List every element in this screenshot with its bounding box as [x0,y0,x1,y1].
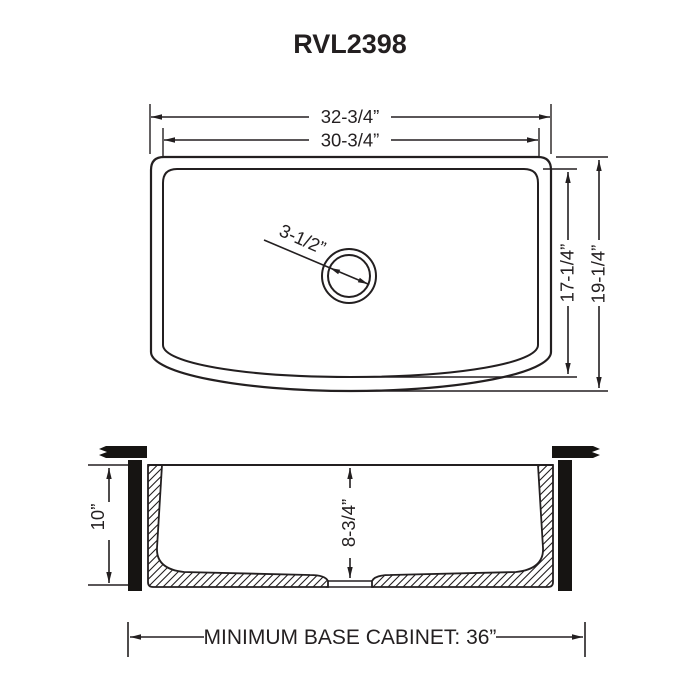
arrowhead-down-icon [347,567,352,578]
dim-bowl-inner-depth: 8-3/4” [338,468,359,578]
arrowhead-down-icon [565,363,570,374]
arrowhead-up-icon [596,160,601,171]
arrowhead-down-icon [106,572,111,583]
apron-height-label: 10” [87,504,108,531]
dim-overall-width: 32-3/4” [151,106,550,127]
bowl-inner-depth-label: 8-3/4” [338,499,359,547]
dim-apron-height: 10” [87,468,112,583]
arrowhead-left-icon [164,137,175,142]
arrowhead-upleft-icon [330,268,340,274]
dim-overall-depth: 19-1/4” [588,160,609,388]
arrowhead-down-icon [596,377,601,388]
overall-width-label: 32-3/4” [321,106,380,127]
arrowhead-up-icon [106,468,111,479]
countertop-right [552,446,600,458]
arrowhead-left-icon [130,634,141,639]
dim-base-cabinet: MINIMUM BASE CABINET: 36” [128,622,585,657]
sink-wall-left-section [148,465,328,587]
top-view: 32-3/4” 30-3/4” 3-1/2” [150,104,609,391]
sink-spec-drawing: RVL2398 32-3/4” 30-3/4” [0,0,700,700]
arrowhead-left-icon [151,114,162,119]
bowl-depth-label: 17-1/4” [557,244,578,303]
page-title: RVL2398 [293,29,407,59]
overall-depth-label: 19-1/4” [588,245,609,304]
arrowhead-up-icon [565,172,570,183]
cabinet-side-left [128,460,142,591]
dim-bowl-depth: 17-1/4” [557,172,578,374]
dim-drain-diameter: 3-1/2” [264,220,368,284]
dim-bowl-width: 30-3/4” [164,130,538,151]
drawing-canvas: RVL2398 32-3/4” 30-3/4” [0,0,700,700]
sink-inner-outline [163,169,538,377]
arrowhead-up-icon [347,468,352,479]
drain-diameter-label: 3-1/2” [276,220,329,259]
arrowhead-right-icon [539,114,550,119]
arrowhead-right-icon [572,634,583,639]
bowl-width-label: 30-3/4” [321,130,380,151]
section-view: 10” 8-3/4” MINIMUM BASE CABINET: 36” [87,446,600,657]
arrowhead-downright-icon [358,278,368,284]
cabinet-side-right [558,460,572,591]
arrowhead-right-icon [527,137,538,142]
countertop-left [99,446,147,458]
sink-outer-outline [151,157,551,391]
sink-wall-right-section [372,465,553,587]
base-cabinet-label: MINIMUM BASE CABINET: 36” [204,626,497,649]
